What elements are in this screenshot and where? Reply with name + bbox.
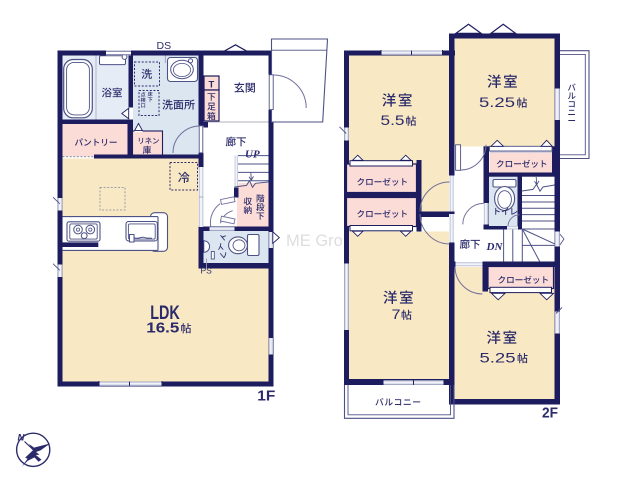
svg-text:5.5: 5.5	[381, 113, 405, 128]
svg-text:1F: 1F	[257, 389, 275, 405]
svg-text:16.5: 16.5	[146, 320, 179, 336]
svg-text:7: 7	[392, 307, 401, 322]
svg-text:T: T	[209, 80, 215, 91]
svg-text:PS: PS	[201, 266, 213, 276]
svg-text:5.25: 5.25	[479, 95, 515, 110]
svg-text:5.25: 5.25	[480, 350, 516, 365]
svg-text:DS: DS	[157, 40, 172, 52]
svg-text:DN: DN	[486, 241, 504, 253]
svg-text:2F: 2F	[542, 405, 558, 421]
svg-text:UP: UP	[245, 149, 260, 161]
